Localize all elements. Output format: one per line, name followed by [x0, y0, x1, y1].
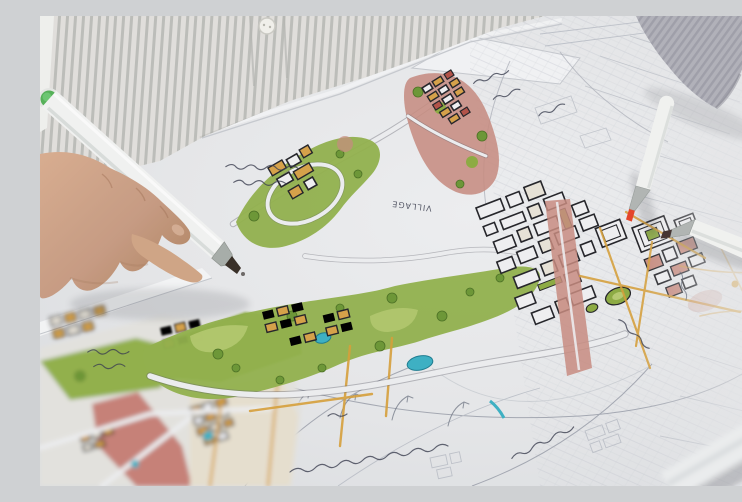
vignette: [40, 16, 742, 486]
photo-urban-planning-sketch: VILLAGE: [40, 16, 742, 486]
